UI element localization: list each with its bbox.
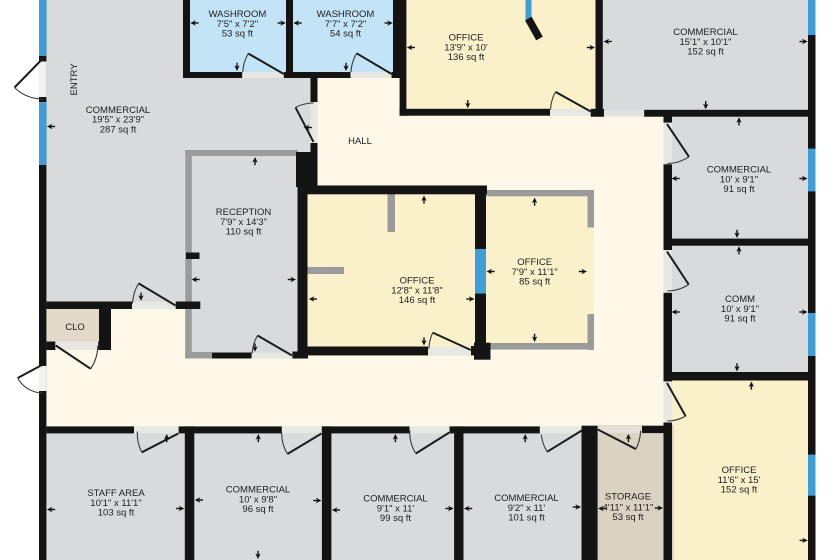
svg-text:136 sq ft: 136 sq ft <box>448 52 485 63</box>
svg-text:287 sq ft: 287 sq ft <box>100 124 137 135</box>
svg-text:99 sq ft: 99 sq ft <box>380 513 412 524</box>
svg-text:91 sq ft: 91 sq ft <box>724 314 756 325</box>
svg-text:HALL: HALL <box>348 136 372 147</box>
svg-text:110 sq ft: 110 sq ft <box>226 227 262 238</box>
svg-text:152 sq ft: 152 sq ft <box>687 47 724 58</box>
svg-text:152 sq ft: 152 sq ft <box>721 485 758 496</box>
svg-text:53 sq ft: 53 sq ft <box>612 512 644 523</box>
svg-text:85 sq ft: 85 sq ft <box>519 277 551 288</box>
svg-text:53 sq ft: 53 sq ft <box>222 29 254 40</box>
svg-text:91 sq ft: 91 sq ft <box>723 184 755 195</box>
svg-text:146 sq ft: 146 sq ft <box>399 295 436 306</box>
svg-text:54 sq ft: 54 sq ft <box>330 29 362 40</box>
svg-text:103 sq ft: 103 sq ft <box>98 508 135 519</box>
svg-text:CLO: CLO <box>65 322 85 333</box>
svg-text:STORAGE: STORAGE <box>605 492 651 503</box>
svg-text:ENTRY: ENTRY <box>69 63 80 96</box>
svg-text:101 sq ft: 101 sq ft <box>508 513 545 524</box>
svg-text:96 sq ft: 96 sq ft <box>242 504 274 515</box>
